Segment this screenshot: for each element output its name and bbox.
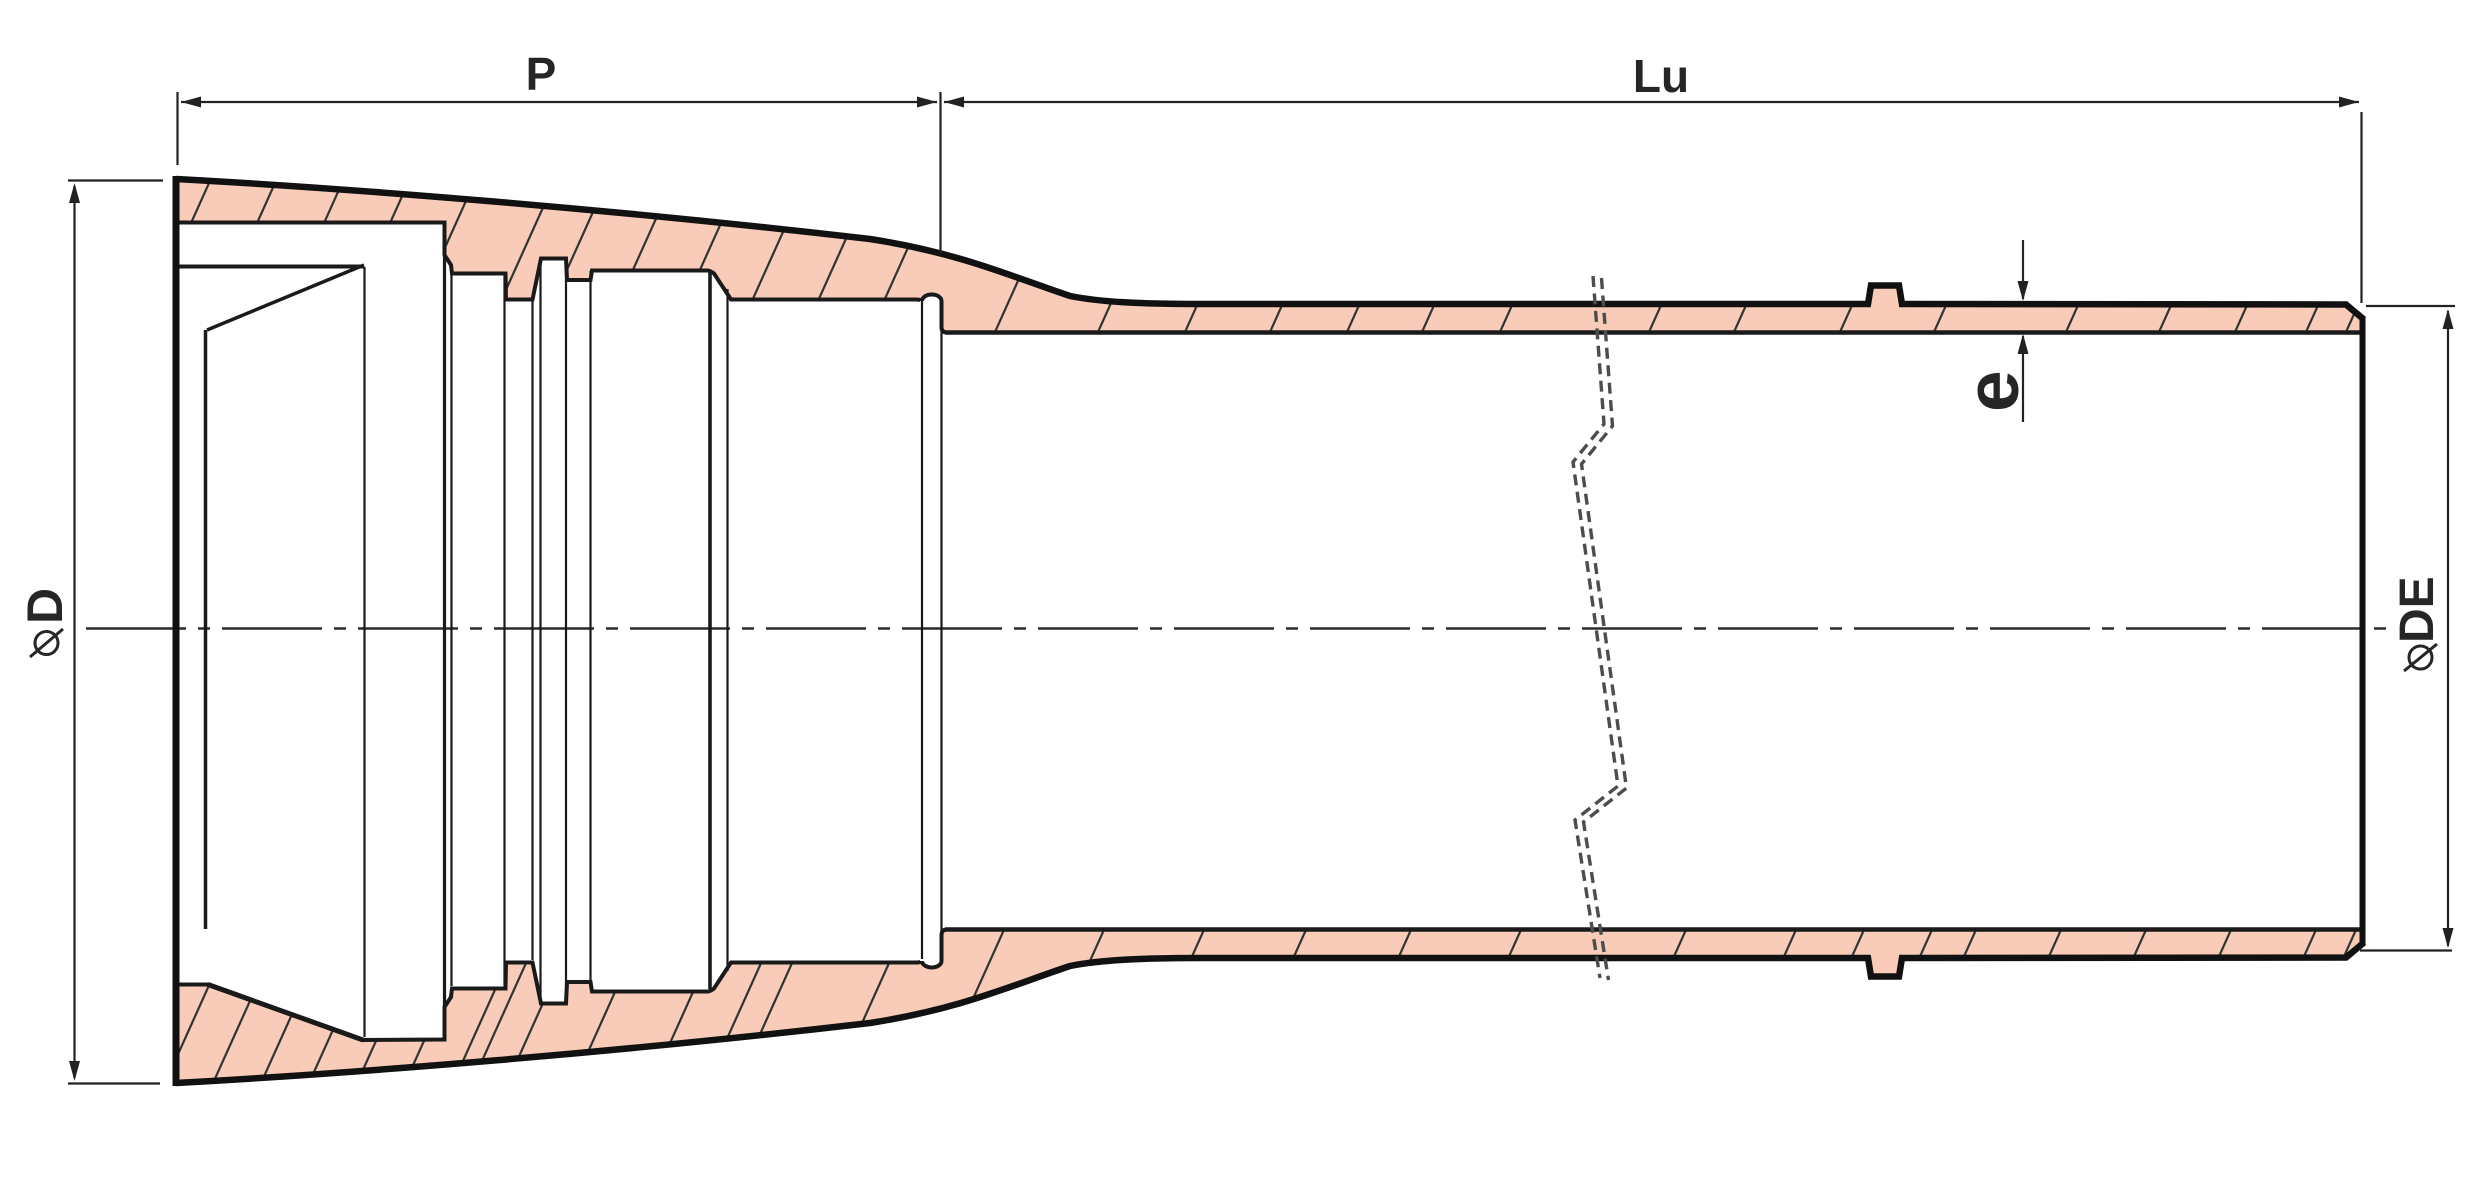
svg-text:D: D (17, 588, 73, 624)
svg-text:e: e (1950, 370, 2034, 412)
svg-text:P: P (526, 48, 557, 100)
svg-text:DE: DE (2391, 576, 2444, 643)
svg-text:Lu: Lu (1633, 50, 1689, 102)
